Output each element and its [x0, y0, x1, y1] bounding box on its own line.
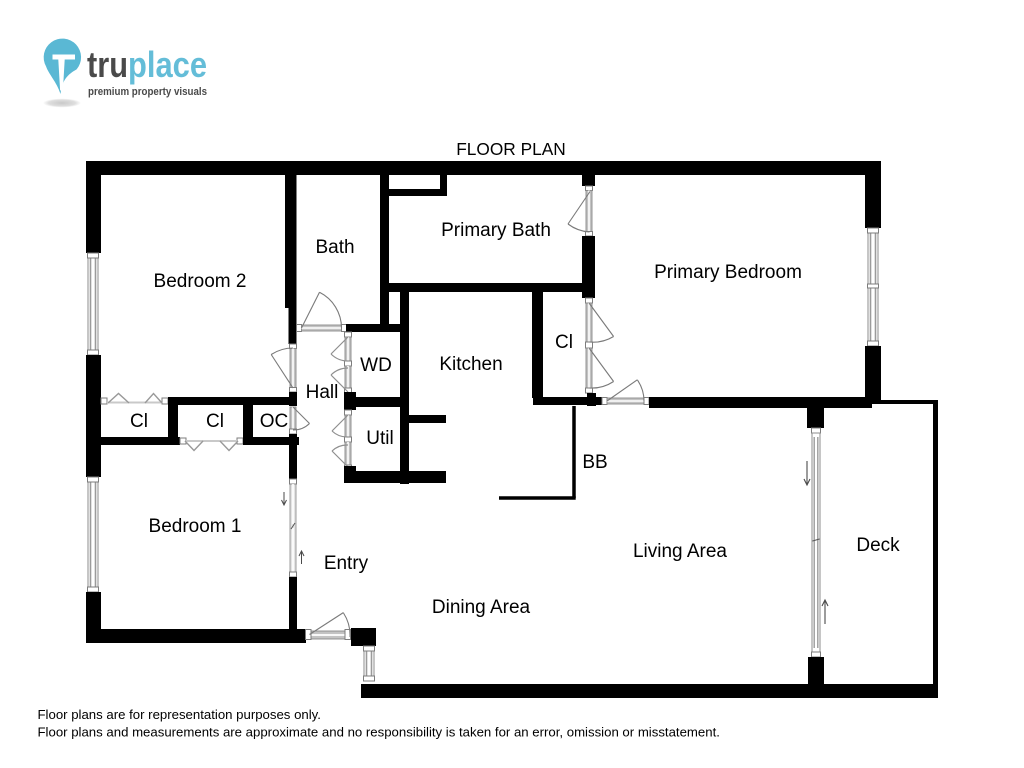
svg-text:Living Area: Living Area	[633, 541, 727, 562]
svg-text:Bath: Bath	[315, 237, 354, 258]
svg-text:Entry: Entry	[324, 553, 369, 574]
svg-text:Bedroom 2: Bedroom 2	[154, 271, 247, 292]
svg-text:FLOOR PLAN: FLOOR PLAN	[456, 139, 565, 159]
svg-text:Cl: Cl	[130, 411, 148, 432]
svg-text:Floor plans and measurements a: Floor plans and measurements are approxi…	[38, 725, 720, 740]
svg-text:WD: WD	[360, 355, 392, 376]
svg-text:Floor plans are for representa: Floor plans are for representation purpo…	[38, 707, 321, 722]
svg-text:Primary Bath: Primary Bath	[441, 220, 551, 241]
svg-text:Util: Util	[366, 428, 393, 449]
svg-text:Hall: Hall	[306, 382, 339, 403]
svg-text:premium property visuals: premium property visuals	[88, 86, 207, 98]
svg-text:Cl: Cl	[555, 332, 573, 353]
svg-text:Cl: Cl	[206, 411, 224, 432]
svg-text:place: place	[128, 44, 207, 85]
svg-text:OC: OC	[260, 411, 289, 432]
svg-text:Dining Area: Dining Area	[432, 597, 531, 618]
svg-text:Primary Bedroom: Primary Bedroom	[654, 262, 802, 283]
svg-text:Bedroom 1: Bedroom 1	[149, 516, 242, 537]
svg-text:BB: BB	[582, 452, 607, 473]
svg-text:Deck: Deck	[856, 535, 900, 556]
svg-text:Kitchen: Kitchen	[439, 354, 502, 375]
svg-text:tru: tru	[87, 44, 128, 85]
